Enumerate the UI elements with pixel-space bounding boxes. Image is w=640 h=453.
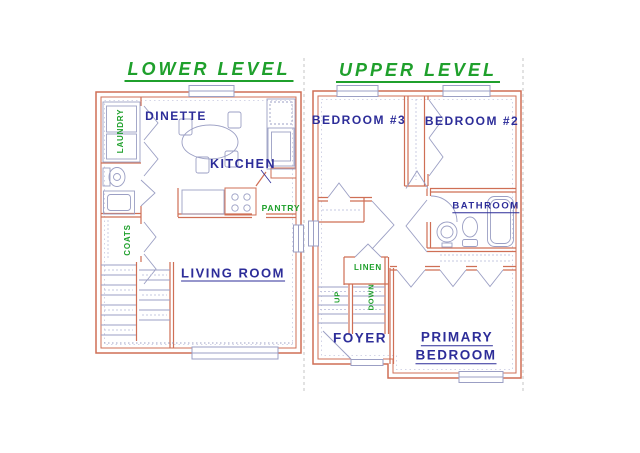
toilet	[103, 168, 125, 187]
bathroom-sink	[437, 222, 457, 247]
room-label-living-room: LIVING ROOM	[181, 267, 285, 282]
upper-door-swings	[328, 100, 503, 287]
room-label-dinette: DINETTE	[145, 110, 207, 122]
kitchen-counter	[182, 190, 224, 214]
room-label-pantry: PANTRY	[262, 204, 301, 213]
lower-outer-walls	[96, 92, 301, 353]
stairs-label-down: DOWN	[367, 284, 375, 311]
floor-plan-canvas: LOWER LEVEL UPPER LEVEL DINETTE KITCHEN …	[0, 0, 640, 453]
stairs-lower	[101, 265, 170, 335]
lower-inner-trim	[105, 101, 293, 345]
room-label-bedroom2: BEDROOM #2	[425, 115, 519, 127]
floor-plan-drawing	[0, 0, 640, 453]
upper-interior-walls	[318, 96, 516, 364]
lower-fixtures	[101, 99, 295, 343]
room-label-bedroom3: BEDROOM #3	[312, 114, 406, 126]
lower-windows	[189, 86, 304, 360]
room-label-primary-line1: PRIMARY	[421, 330, 493, 346]
room-label-foyer: FOYER	[333, 331, 387, 345]
room-label-laundry: LAUNDRY	[117, 109, 125, 153]
stairs-label-up: UP	[333, 291, 341, 303]
room-label-bathroom: BATHROOM	[452, 201, 519, 213]
upper-level-title: UPPER LEVEL	[336, 61, 500, 83]
vanity-sink	[104, 191, 135, 214]
room-label-linen: LINEN	[354, 264, 382, 272]
lower-level-plan	[96, 86, 304, 360]
lower-door-swings	[141, 106, 158, 284]
room-label-kitchen: KITCHEN	[210, 158, 276, 171]
stove-burners	[232, 194, 250, 211]
primary-closet-shelf	[440, 255, 512, 261]
lower-level-title: LOWER LEVEL	[125, 60, 294, 82]
room-label-coats: COATS	[124, 224, 132, 255]
bathroom-toilet	[463, 217, 478, 247]
stove-outline	[225, 188, 256, 215]
room-label-primary-line2: BEDROOM	[416, 348, 497, 364]
